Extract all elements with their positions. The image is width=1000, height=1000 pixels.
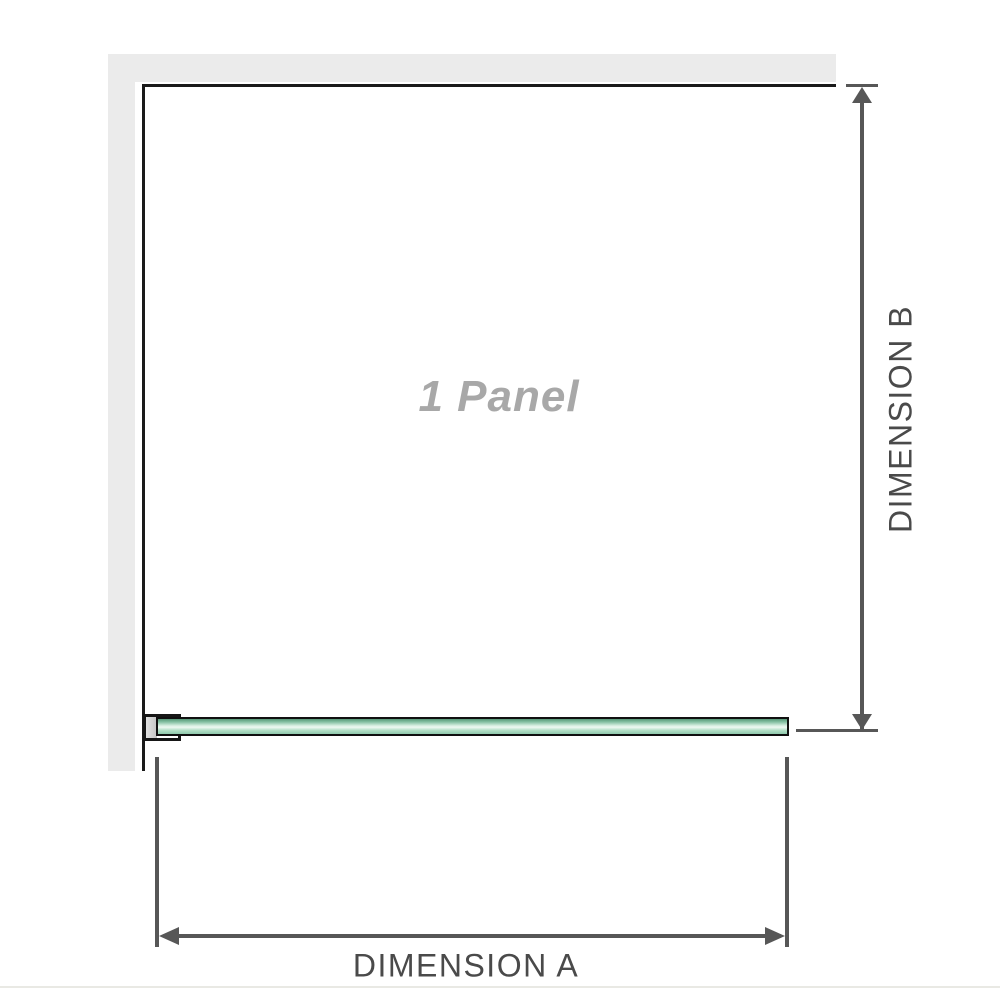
dimension-b-label: DIMENSION B <box>883 305 920 533</box>
dimension-a-extension-left <box>155 757 159 947</box>
glass-panel <box>156 717 789 736</box>
wall-top <box>108 54 836 82</box>
arrow-right-icon <box>765 927 785 945</box>
panel-edge-top <box>142 84 836 87</box>
arrow-down-icon <box>852 714 872 730</box>
panel-count-label: 1 Panel <box>418 372 579 422</box>
dimension-b-line <box>860 90 864 730</box>
arrow-left-icon <box>159 927 179 945</box>
wall-left <box>108 54 135 771</box>
dimension-a-extension-right <box>785 757 789 947</box>
panel-edge-left <box>142 84 145 771</box>
dimension-a-label: DIMENSION A <box>353 948 579 985</box>
baseline-rule <box>0 986 1000 988</box>
dimension-a-line <box>165 934 781 938</box>
arrow-up-icon <box>852 87 872 103</box>
panel-diagram: 1 Panel DIMENSION B DIMENSION A <box>0 0 1000 1000</box>
